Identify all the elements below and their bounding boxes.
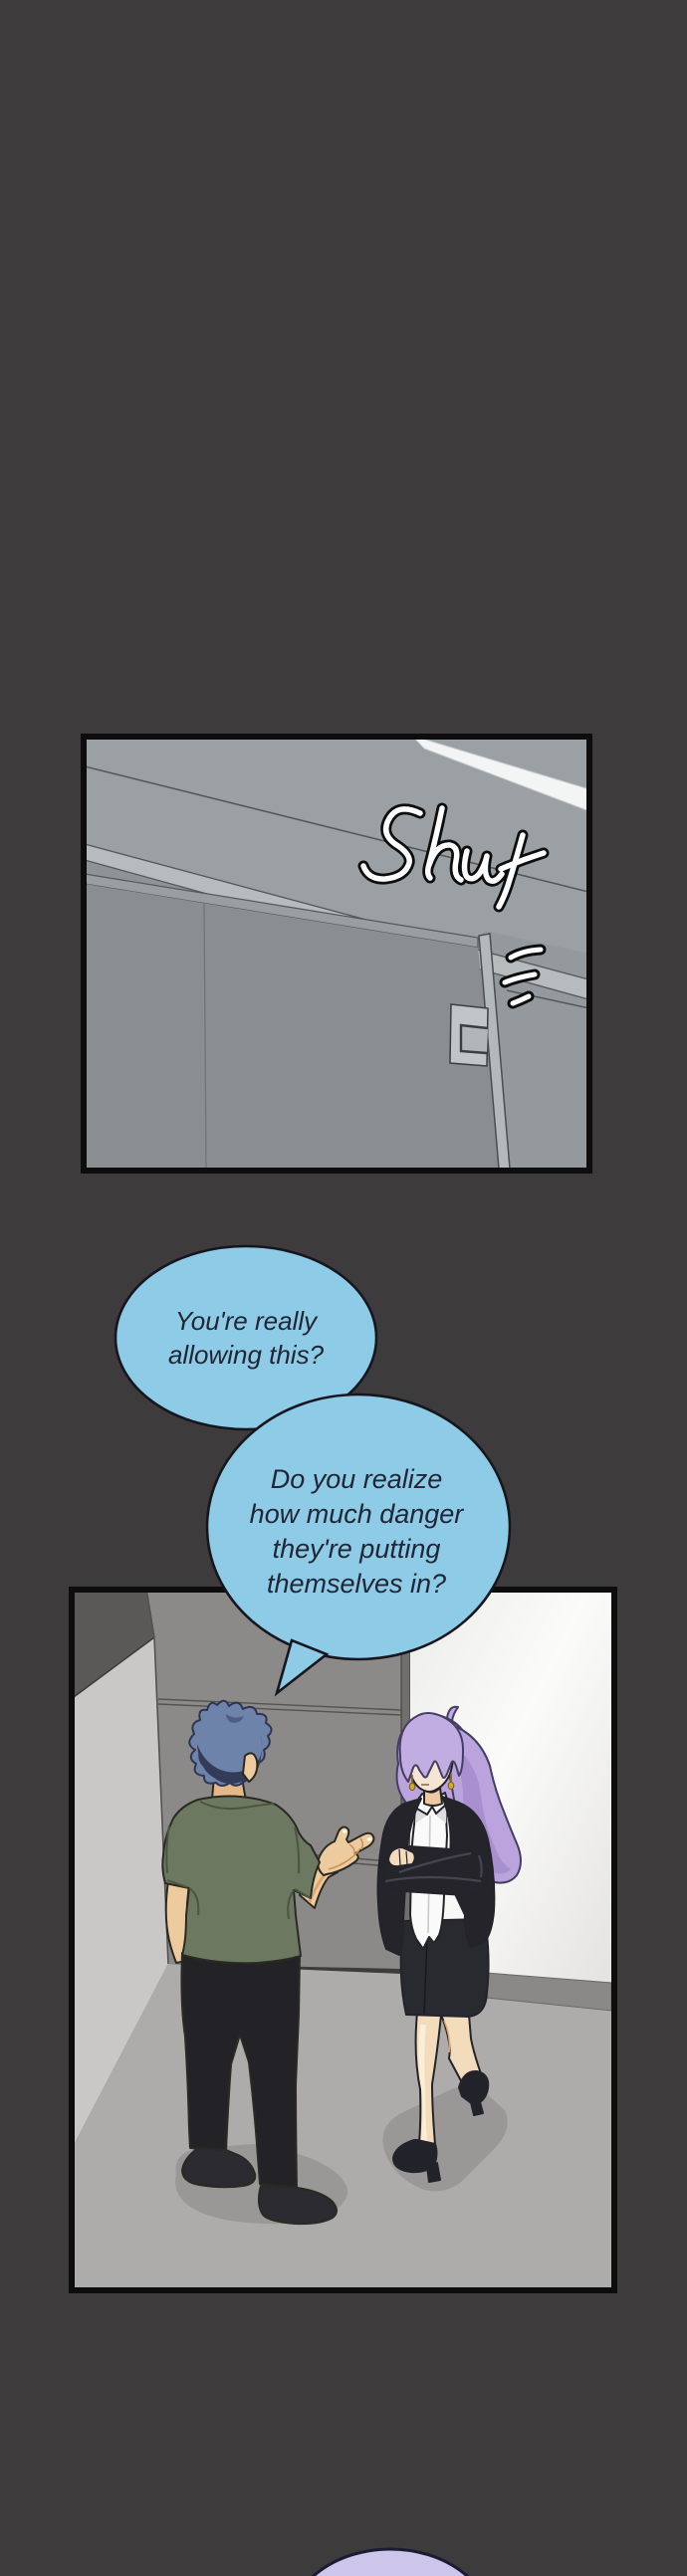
svg-text:themselves in?: themselves in? bbox=[267, 1569, 446, 1599]
svg-text:they're putting: they're putting bbox=[273, 1534, 441, 1564]
svg-text:Do you realize: Do you realize bbox=[271, 1464, 443, 1494]
svg-text:allowing this?: allowing this? bbox=[168, 1340, 325, 1370]
svg-text:You're really: You're really bbox=[175, 1306, 319, 1336]
svg-text:how much danger: how much danger bbox=[250, 1499, 465, 1529]
